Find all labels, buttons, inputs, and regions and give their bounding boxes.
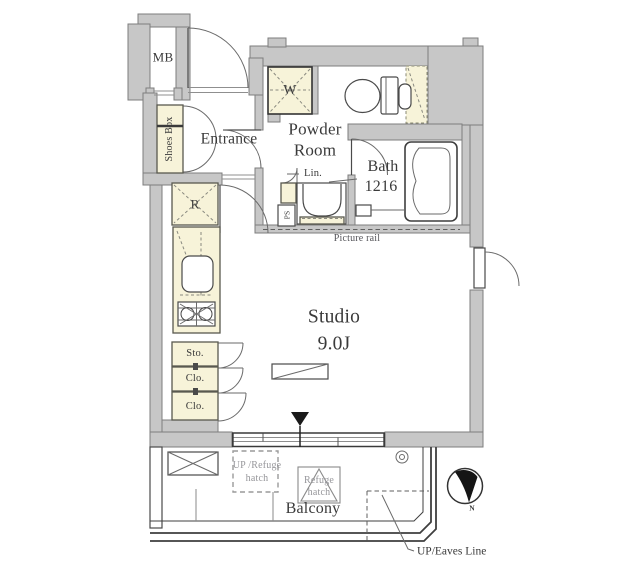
bath-label-1: Bath xyxy=(367,159,398,175)
up-eaves-line-label: UP/Eaves Line xyxy=(417,546,486,558)
compass-north-label: N xyxy=(469,504,475,512)
balcony-windows xyxy=(232,433,385,447)
stove-icon xyxy=(178,302,215,326)
exterior-side-door xyxy=(474,248,519,288)
meter-box-label: MB xyxy=(153,51,174,64)
closet-doors xyxy=(218,343,246,421)
washer-label: W xyxy=(283,84,296,98)
kitchen-sink xyxy=(182,256,213,292)
desk-counter xyxy=(272,364,328,379)
powder-room-label-2: Room xyxy=(294,142,336,159)
toilet-icon xyxy=(345,77,411,114)
picture-rail-label: Picture rail xyxy=(334,234,381,244)
balcony-label: Balcony xyxy=(286,501,341,517)
kitchen-counter xyxy=(173,227,220,333)
compass-icon xyxy=(448,469,483,504)
front-door xyxy=(188,28,248,88)
linen-label: Lin. xyxy=(304,169,322,180)
storage-label: Sto. xyxy=(186,349,203,360)
pipe-space-label: PS xyxy=(283,211,291,220)
entrance-label: Entrance xyxy=(201,131,258,147)
balcony-drain xyxy=(396,451,408,463)
closet-label-1: Clo. xyxy=(186,374,205,385)
linen-door xyxy=(282,168,297,183)
shoes-box-label: Shoes Box xyxy=(165,117,175,162)
up-refuge-hatch-box xyxy=(233,451,278,492)
refrigerator-label: R xyxy=(191,198,200,211)
powder-room-label-1: Powder xyxy=(288,121,341,138)
refuge-hatch-label-2: hatch xyxy=(308,488,331,498)
washbasin xyxy=(297,183,346,224)
up-refuge-hatch-label-1: UP /Refuge xyxy=(233,461,282,471)
closet-label-2: Clo. xyxy=(186,402,205,413)
bath-label-2: 1216 xyxy=(365,179,398,195)
studio-label-2: 9.0J xyxy=(318,334,351,354)
floor-plan: MB Shoes Box Entrance Powder Room W Lin.… xyxy=(0,0,640,569)
studio-label-1: Studio xyxy=(308,307,360,327)
up-refuge-hatch-label-2: hatch xyxy=(246,474,269,484)
refuge-hatch-label-1: Refuge xyxy=(304,476,334,486)
linen-cabinet xyxy=(281,183,296,203)
ac-unit-space xyxy=(168,452,218,475)
